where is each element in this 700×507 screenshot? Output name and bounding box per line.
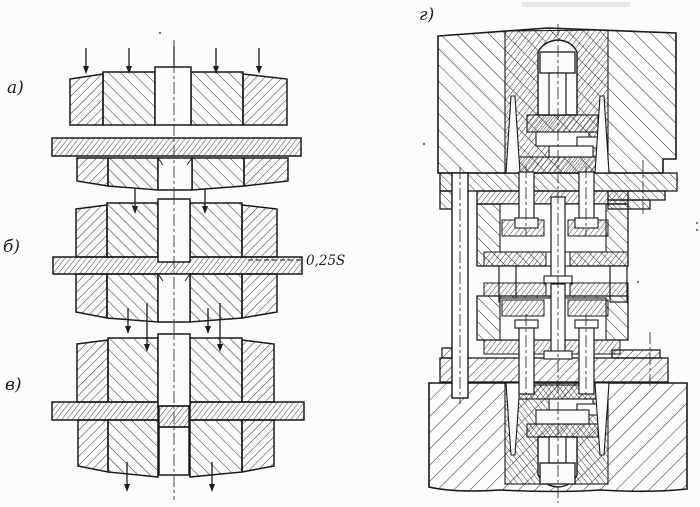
depth-annotation: 0,25S [306,253,345,269]
upper-shoe [438,28,676,173]
scan-dot [696,229,698,231]
panel-b: б) 0,25S [3,189,345,330]
die-inner-right [190,420,242,477]
die-outer-right [242,420,274,472]
die-outer-right [242,274,277,318]
clamp-bolt-shank-top [549,73,566,115]
insert-block [502,300,544,316]
lower-plate-step-left [442,348,452,358]
clamp-bolt-shank-bottom [549,437,566,463]
force-arrow-head [205,326,211,334]
upper-plate-body [440,173,677,191]
punch-holder-inner-left [107,203,158,257]
scan-dot [637,281,639,283]
stripper-bolt-cap [575,320,598,328]
punch-holder-inner-left [108,338,158,402]
upper-die-block-a [70,67,287,125]
force-arrow-head [256,66,262,74]
force-arrow-head [125,326,131,334]
panel-label-g: г) [419,5,434,25]
panel-label-a: а) [7,78,24,98]
die-outer-right [244,158,288,186]
punch-head-plate-top [527,115,598,132]
lower-die-block-a [77,158,288,190]
panel-label-b: б) [3,237,20,257]
punch-holder-outer-right [242,340,274,402]
stripper-bolt [519,328,534,394]
guide-pin-collar [515,218,538,228]
lower-die-block-b [76,274,277,322]
lower-die-unit [477,283,628,354]
clamp-bolt-head-top [540,52,575,73]
panel-v: в) [5,303,304,500]
scan-dot [696,222,698,224]
punch-holder-outer-right [243,74,287,125]
punch-holder-inner-right [191,72,243,125]
panel-a: а) [7,40,301,202]
guide-pin [519,172,534,224]
punch-holder-outer-right [242,205,277,257]
die-inner-right [192,158,244,190]
panel-g: г) [419,5,687,503]
force-arrow-head [83,66,89,74]
die-opening [158,158,192,190]
lower-die-block-v [78,420,274,477]
clamp-bolt-head-bottom [540,463,575,484]
punch-holder-inner-right [190,338,242,402]
scan-dot [423,143,425,145]
scan-smudge [522,2,630,7]
punch [155,67,191,125]
sheet-strip-a [52,138,301,156]
force-arrow-head [209,484,215,492]
stripper-bolt [579,328,594,394]
lower-plate-step [612,350,660,358]
panel-label-v: в) [5,375,22,395]
die-inner-left [108,158,158,190]
sheet-strip-left [52,402,158,420]
punch-holder-inner-left [103,72,155,125]
die-inner-right [190,274,242,322]
die-inner-left [108,420,158,477]
scan-dot [159,32,161,34]
die-backing-plate [527,424,598,437]
figure-page: а) [0,0,700,507]
force-arrow-head [124,484,130,492]
die-outer-left [76,274,107,318]
clamp-ring-top [514,157,604,173]
punch-holder-outer-left [70,74,103,125]
punch-holder-inner-right [190,203,242,257]
lower-plate-body [440,358,668,382]
shim-step [536,410,589,424]
die-outer-left [77,158,108,186]
figure-svg: а) [0,0,700,507]
guide-pin-collar [575,218,598,228]
die-inner-left [107,274,158,322]
insert-block [568,300,608,316]
punch-holder-outer-left [77,340,108,402]
upper-plate-step-left [440,191,452,209]
shim-step [549,146,593,157]
stripper-bolt-cap [515,320,538,328]
punch-holder-outer-left [76,205,107,257]
guide-pin [579,172,594,224]
sheet-strip-right [190,402,304,420]
die-outer-left [78,420,108,472]
